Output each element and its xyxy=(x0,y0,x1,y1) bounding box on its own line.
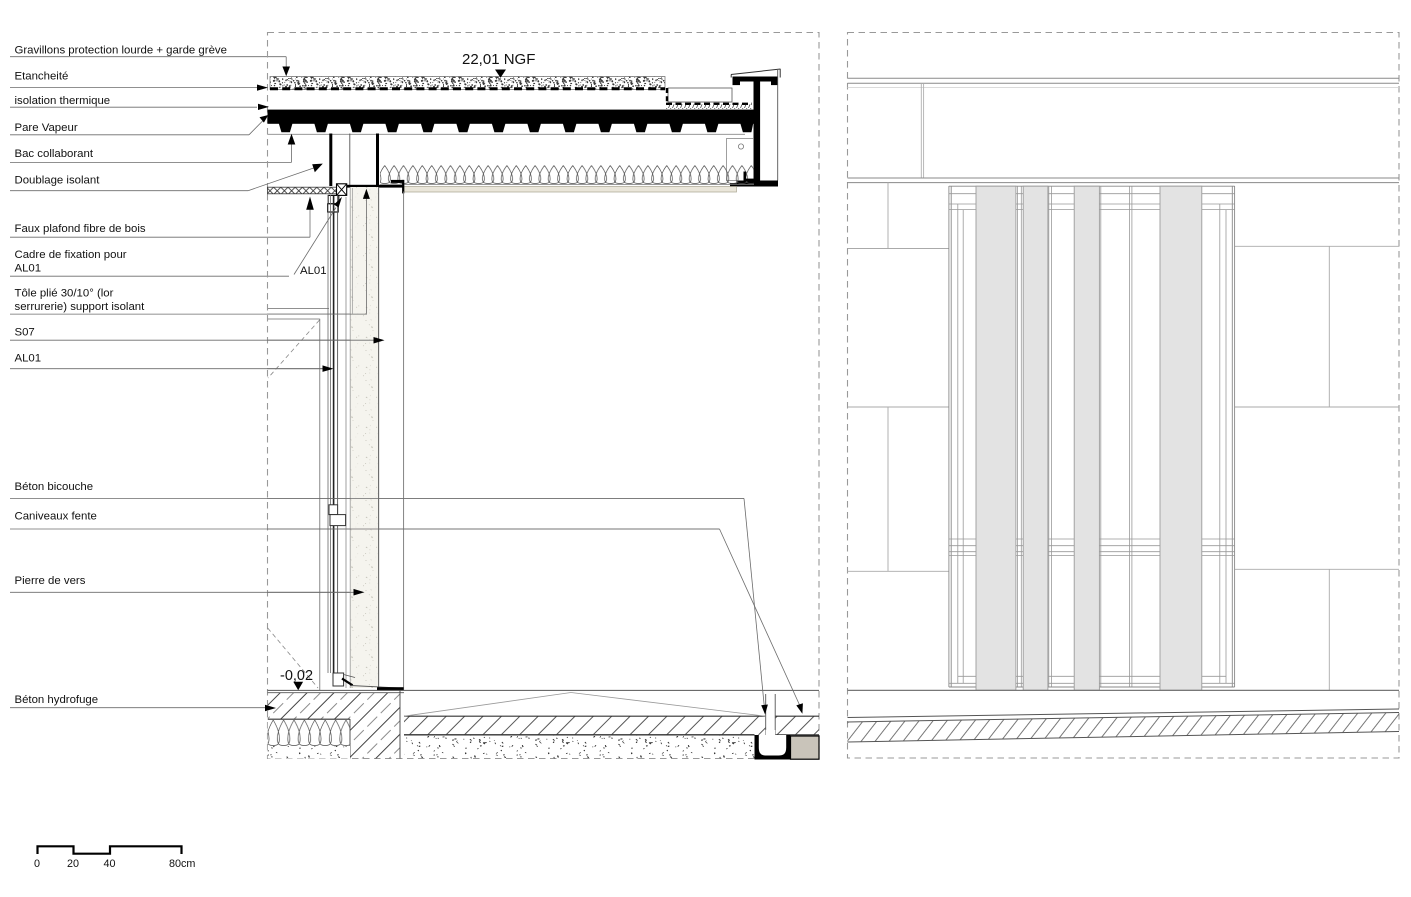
svg-text:-0,02: -0,02 xyxy=(280,668,313,684)
svg-text:Béton bicouche: Béton bicouche xyxy=(15,481,94,493)
svg-text:40: 40 xyxy=(104,858,116,870)
svg-text:Pare Vapeur: Pare Vapeur xyxy=(15,122,78,134)
svg-text:S07: S07 xyxy=(15,327,35,339)
svg-text:Doublage isolant: Doublage isolant xyxy=(15,175,101,187)
svg-text:22,01 NGF: 22,01 NGF xyxy=(462,51,535,68)
svg-text:Gravillons protection lourde +: Gravillons protection lourde + garde grè… xyxy=(15,45,227,57)
svg-text:Pierre de vers: Pierre de vers xyxy=(15,575,86,587)
svg-text:Bac collaborant: Bac collaborant xyxy=(15,148,94,160)
svg-text:Cadre de fixation pour: Cadre de fixation pour xyxy=(15,249,127,261)
svg-text:AL01: AL01 xyxy=(15,353,42,365)
svg-text:Béton hydrofuge: Béton hydrofuge xyxy=(15,694,99,706)
svg-text:Tôle plié 30/10° (lor: Tôle plié 30/10° (lor xyxy=(15,288,114,300)
svg-text:20: 20 xyxy=(67,858,79,870)
svg-text:Faux plafond fibre de bois: Faux plafond fibre de bois xyxy=(15,223,146,235)
svg-text:AL01: AL01 xyxy=(300,265,327,277)
svg-text:0: 0 xyxy=(34,858,40,870)
svg-text:serrurerie) support isolant: serrurerie) support isolant xyxy=(15,301,146,313)
svg-text:Caniveaux fente: Caniveaux fente xyxy=(15,511,97,523)
svg-text:Etancheité: Etancheité xyxy=(15,71,69,83)
svg-text:80cm: 80cm xyxy=(169,858,195,870)
svg-text:isolation thermique: isolation thermique xyxy=(15,95,111,107)
svg-text:AL01: AL01 xyxy=(15,263,42,275)
